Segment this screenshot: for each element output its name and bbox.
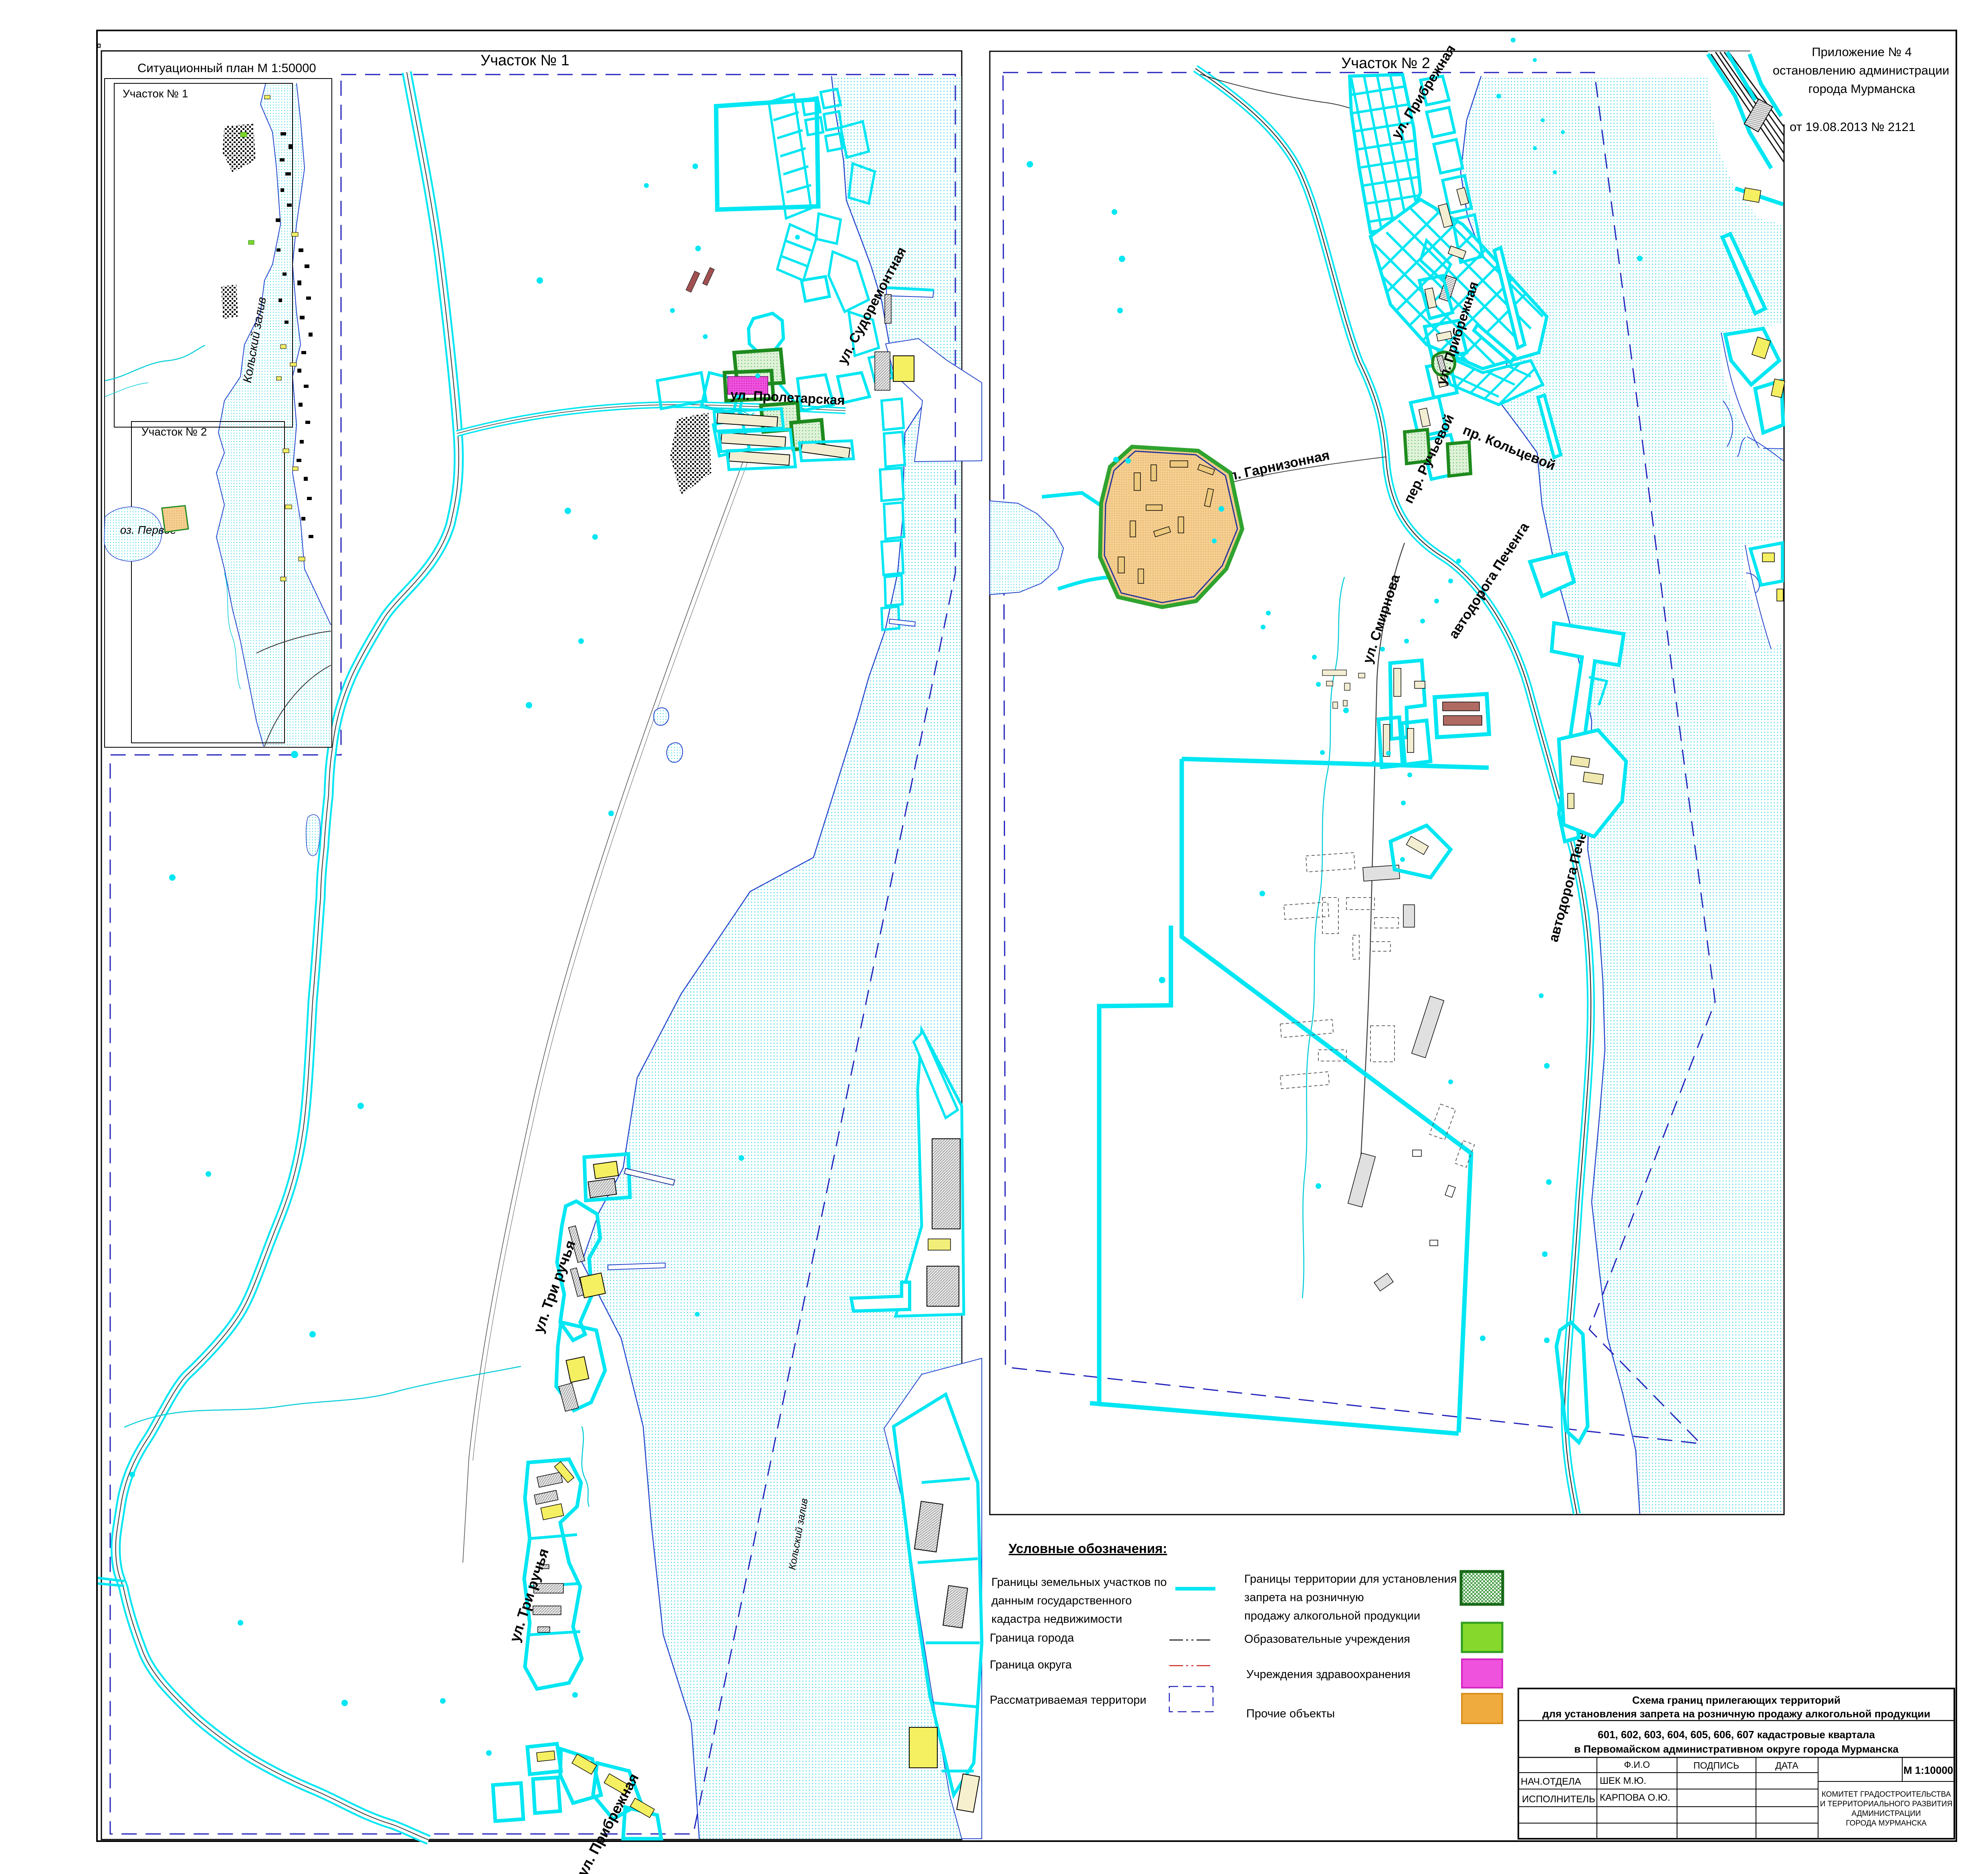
- svg-text:Приложение № 4: Приложение № 4: [1812, 45, 1912, 59]
- svg-text:М 1:10000: М 1:10000: [1903, 1764, 1953, 1776]
- svg-text:продажу алкогольной продукции: продажу алкогольной продукции: [1244, 1610, 1420, 1622]
- svg-text:Граница округа: Граница округа: [990, 1658, 1072, 1671]
- svg-text:АДМИНИСТРАЦИИ: АДМИНИСТРАЦИИ: [1851, 1809, 1921, 1818]
- svg-text:Образовательные учреждения: Образовательные учреждения: [1244, 1633, 1410, 1646]
- svg-text:КАРПОВА О.Ю.: КАРПОВА О.Ю.: [1600, 1792, 1670, 1803]
- svg-text:Участок № 1: Участок № 1: [480, 52, 569, 69]
- svg-text:остановлению администрации: остановлению администрации: [1773, 63, 1950, 77]
- svg-text:Ситуационный план М 1:50000: Ситуационный план М 1:50000: [137, 61, 316, 75]
- svg-text:Участок № 1: Участок № 1: [123, 87, 188, 100]
- svg-text:КОМИТЕТ ГРАДОСТРОИТЕЛЬСТВА: КОМИТЕТ ГРАДОСТРОИТЕЛЬСТВА: [1822, 1790, 1951, 1799]
- svg-text:в Первомайском административно: в Первомайском административном округе г…: [1574, 1743, 1899, 1755]
- svg-text:Учреждения здравоохранения: Учреждения здравоохранения: [1246, 1668, 1411, 1681]
- svg-text:Участок № 2: Участок № 2: [1341, 55, 1430, 72]
- svg-text:от 19.08.2013 № 2121: от 19.08.2013 № 2121: [1790, 120, 1915, 134]
- svg-text:НАЧ.ОТДЕЛА: НАЧ.ОТДЕЛА: [1521, 1776, 1581, 1787]
- svg-text:Прочие объекты: Прочие объекты: [1246, 1707, 1335, 1720]
- svg-text:Схема границ прилегающих терри: Схема границ прилегающих территорий: [1632, 1694, 1841, 1706]
- svg-text:Ф.И.О: Ф.И.О: [1624, 1759, 1650, 1770]
- svg-text:для установления запрета на ро: для установления запрета на розничную пр…: [1542, 1708, 1930, 1720]
- svg-text:И ТЕРРИТОРИАЛЬНОГО РАЗВИТИЯ: И ТЕРРИТОРИАЛЬНОГО РАЗВИТИЯ: [1820, 1800, 1953, 1808]
- svg-text:ШЕК М.Ю.: ШЕК М.Ю.: [1600, 1775, 1646, 1786]
- svg-text:Границы земельных участков по: Границы земельных участков по: [991, 1576, 1167, 1589]
- svg-text:601, 602, 603, 604, 605, 606,: 601, 602, 603, 604, 605, 606, 607 кадаст…: [1598, 1729, 1875, 1741]
- svg-text:ДАТА: ДАТА: [1775, 1760, 1798, 1771]
- svg-text:ИСПОЛНИТЕЛЬ: ИСПОЛНИТЕЛЬ: [1522, 1794, 1595, 1805]
- svg-text:Участок № 2: Участок № 2: [141, 426, 207, 438]
- svg-text:Граница города: Граница города: [990, 1632, 1074, 1644]
- svg-text:данным государственного: данным государственного: [991, 1594, 1132, 1607]
- svg-text:Условные обозначения:: Условные обозначения:: [1009, 1541, 1167, 1556]
- svg-text:Границы территории для установ: Границы территории для установления: [1244, 1573, 1457, 1586]
- svg-text:запрета на розничную: запрета на розничную: [1244, 1591, 1364, 1604]
- svg-text:ГОРОДА МУРМАНСКА: ГОРОДА МУРМАНСКА: [1846, 1819, 1927, 1828]
- svg-text:города Мурманска: города Мурманска: [1808, 82, 1916, 96]
- svg-text:Рассматриваемая территори: Рассматриваемая территори: [990, 1694, 1146, 1707]
- svg-text:ПОДПИСЬ: ПОДПИСЬ: [1693, 1760, 1739, 1771]
- svg-text:кадастра недвижимости: кадастра недвижимости: [991, 1613, 1122, 1626]
